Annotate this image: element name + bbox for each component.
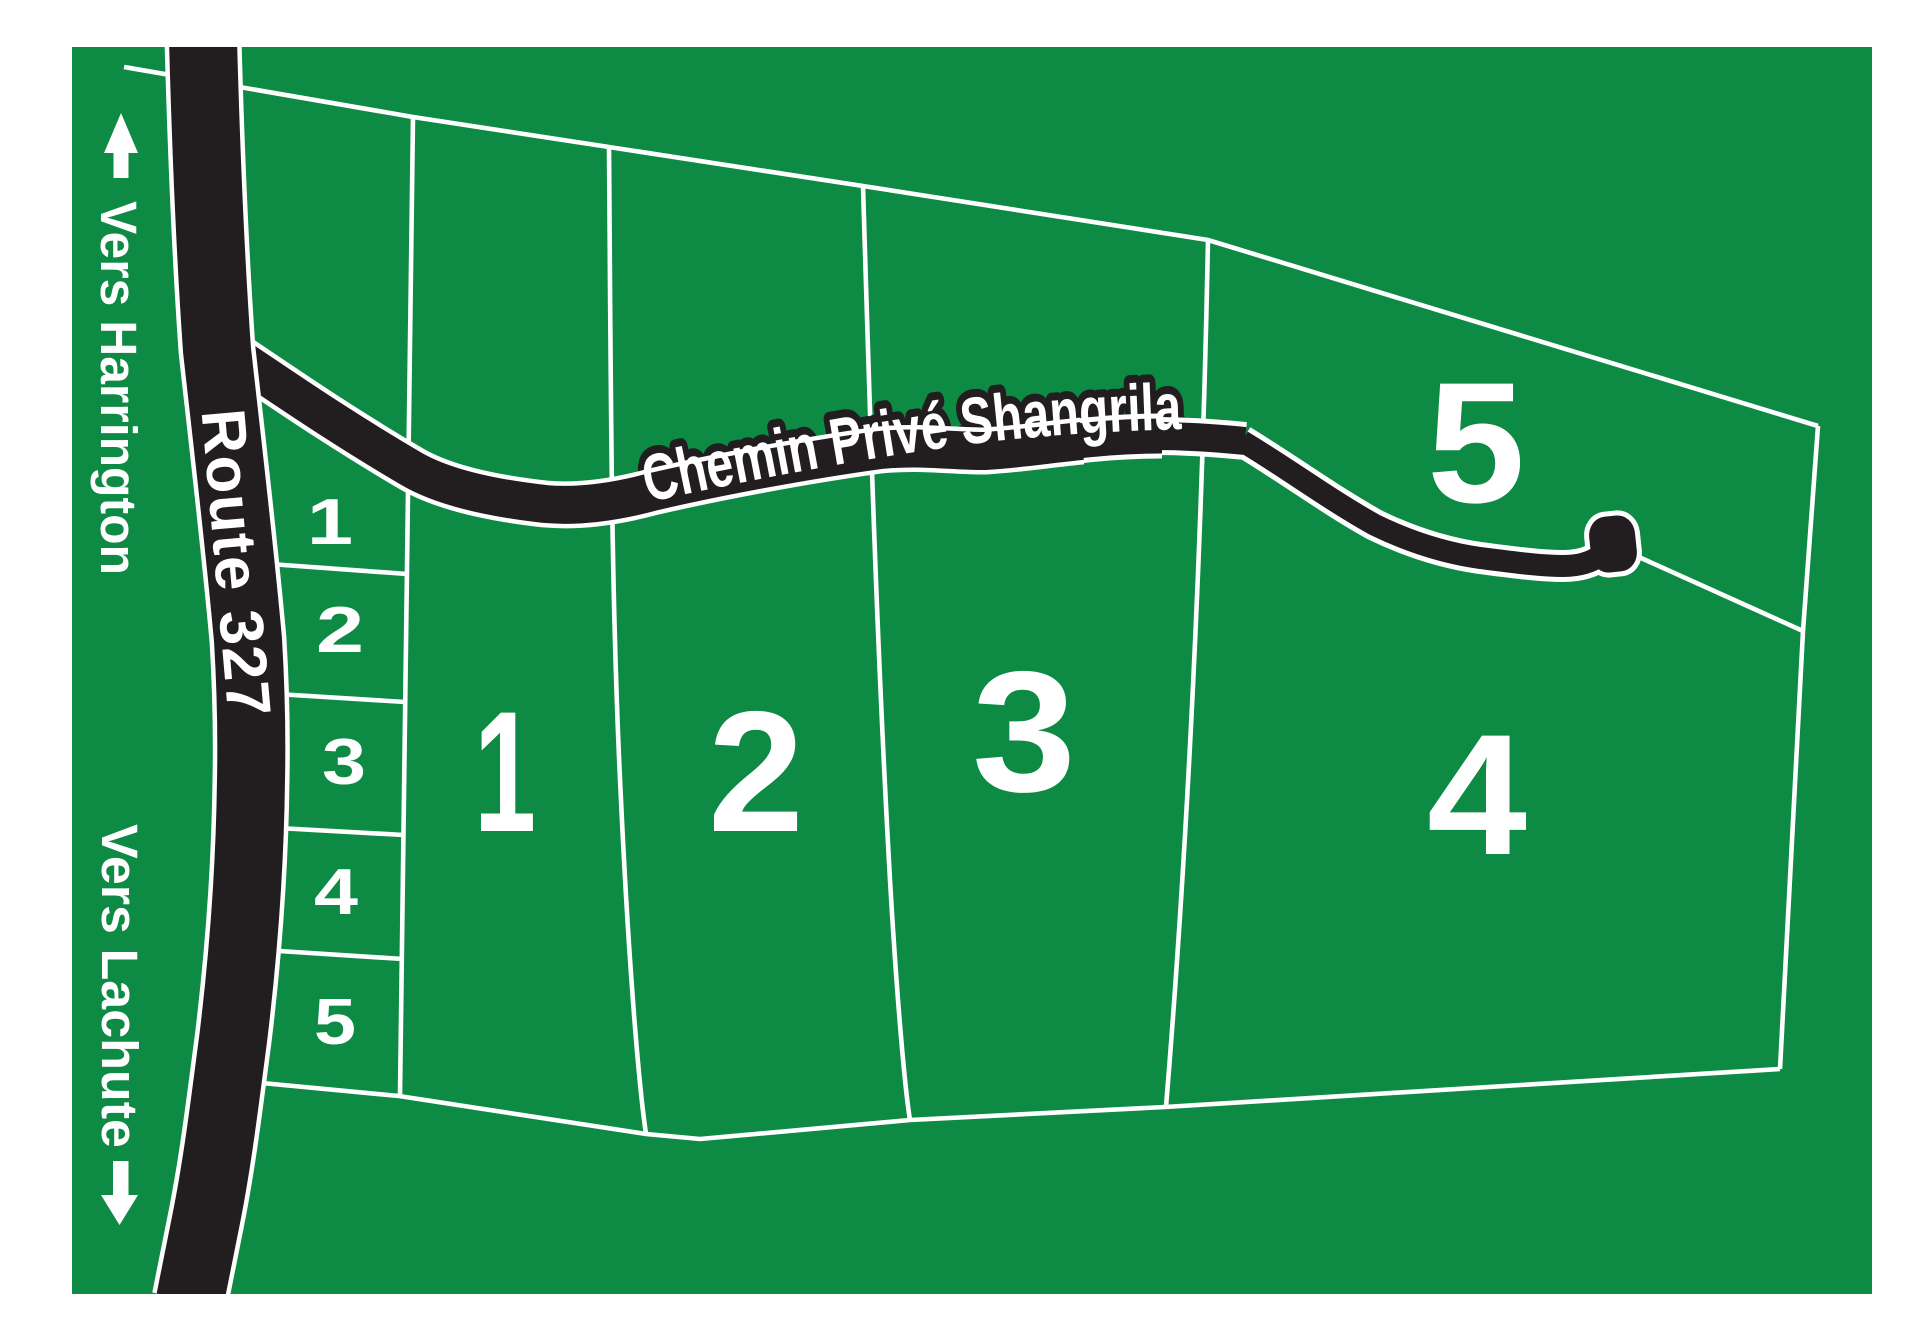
svg-text:5: 5 bbox=[314, 985, 356, 1058]
svg-text:3: 3 bbox=[322, 725, 366, 798]
svg-text:3: 3 bbox=[972, 636, 1076, 828]
svg-text:5: 5 bbox=[1427, 347, 1525, 539]
svg-text:4: 4 bbox=[314, 855, 358, 928]
svg-text:Vers Harrington: Vers Harrington bbox=[90, 201, 147, 575]
svg-text:Vers Lachute: Vers Lachute bbox=[91, 824, 148, 1148]
svg-text:2: 2 bbox=[316, 593, 364, 666]
svg-text:1: 1 bbox=[307, 485, 353, 558]
svg-text:4: 4 bbox=[1427, 699, 1527, 891]
svg-text:2: 2 bbox=[708, 676, 804, 868]
svg-text:1: 1 bbox=[474, 676, 536, 868]
